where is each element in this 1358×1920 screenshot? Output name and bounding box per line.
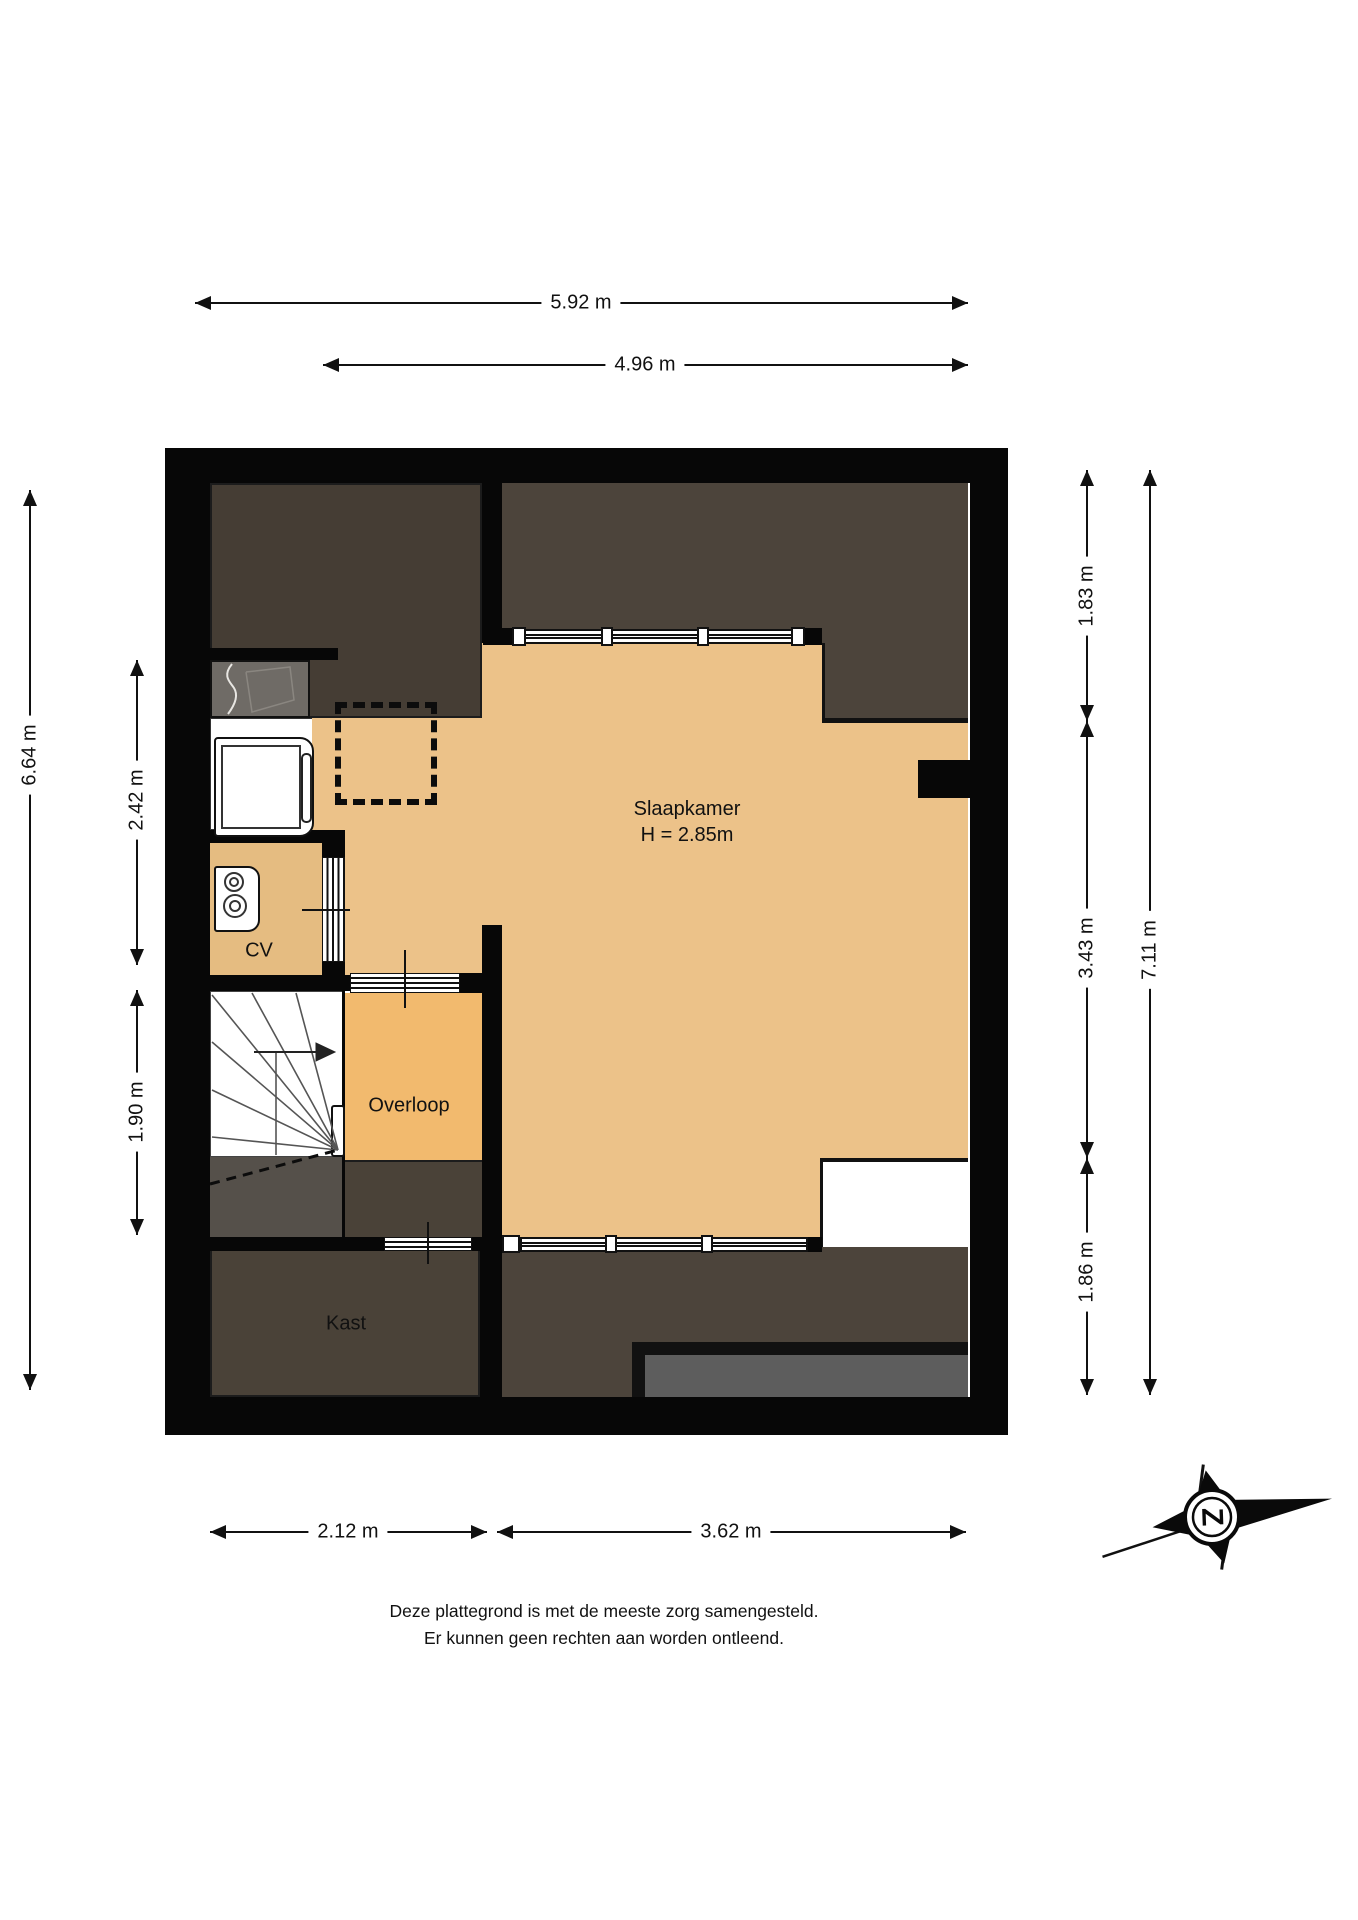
dim-right-sep1-lower (1080, 721, 1094, 737)
window-bottom-jamb-right (808, 1237, 822, 1252)
outer-wall-bottom (165, 1397, 1008, 1435)
disclaimer-line2: Er kunnen geen rechten aan worden ontlee… (390, 1625, 819, 1652)
dim-bottom-right-arrow-right (950, 1525, 966, 1539)
kast-label: Kast (326, 1313, 366, 1336)
floor-overloop (345, 993, 482, 1160)
door-overloop-tick (404, 950, 406, 1008)
window-top-end-left (512, 627, 526, 646)
cv-boiler (214, 866, 260, 932)
disclaimer-line1: Deze plattegrond is met de meeste zorg s… (390, 1598, 819, 1625)
edge-balcony-top (632, 1342, 968, 1355)
wall-cv-right-top (322, 830, 345, 858)
washing-machine-handle (301, 753, 312, 823)
washing-machine-drum (221, 745, 301, 829)
dim-top-inner-arrow-right (952, 358, 968, 372)
dim-left-outer-line (29, 490, 31, 1390)
window-top-line2 (514, 637, 803, 639)
dim-bottom-left-arrow-right (471, 1525, 487, 1539)
wall-window-jamb-right (805, 628, 822, 645)
edge-botright-top (822, 1158, 968, 1162)
window-bottom-divider2 (701, 1235, 713, 1253)
window-bottom (520, 1237, 808, 1252)
dim-bottom-right-arrow-left (497, 1525, 513, 1539)
dim-right-chain-arrow-top (1080, 470, 1094, 486)
window-bottom-divider1 (605, 1235, 617, 1253)
door-cv-tick (302, 909, 350, 911)
compass-star (1149, 1462, 1336, 1568)
dim-left-upper-arrow-top (130, 660, 144, 676)
window-bottom-end-left (502, 1235, 520, 1253)
window-top-line1 (514, 634, 803, 636)
floor-slaapkamer-main (502, 643, 822, 1237)
slaapkamer-label: Slaapkamer (634, 796, 741, 822)
cv-label: CV (245, 940, 273, 963)
dim-right-outer-arrow-top (1143, 470, 1157, 486)
window-top (512, 629, 805, 644)
dim-right-upper-label: 1.83 m (1076, 556, 1099, 635)
dim-bottom-left-arrow-left (210, 1525, 226, 1539)
dim-right-chain-arrow-bottom (1080, 1379, 1094, 1395)
dim-top-outer-arrow-left (195, 296, 211, 310)
dim-right-sep1-upper (1080, 705, 1094, 721)
cv-boiler-knob-top (224, 872, 244, 892)
dashed-roof-opening (335, 702, 437, 805)
dim-bottom-left-label: 2.12 m (308, 1521, 387, 1544)
dim-right-middle-label: 3.43 m (1076, 908, 1099, 987)
cv-boiler-knob-bottom-inner (229, 900, 241, 912)
outer-wall-right (970, 448, 1008, 1435)
dim-left-upper-label: 2.42 m (126, 760, 149, 839)
cv-boiler-knob-bottom (223, 894, 247, 918)
wall-landing-bottom (210, 1237, 384, 1251)
dim-top-inner-arrow-left (323, 358, 339, 372)
dim-top-outer-arrow-right (952, 296, 968, 310)
dim-left-lower-arrow-bottom (130, 1219, 144, 1235)
stairs-area (210, 991, 345, 1157)
overloop-label: Overloop (368, 1095, 449, 1118)
disclaimer: Deze plattegrond is met de meeste zorg s… (390, 1598, 819, 1652)
wall-topleft-room-right (482, 483, 502, 643)
dim-left-outer-label: 6.64 m (19, 715, 42, 794)
dim-right-sep2-lower (1080, 1158, 1094, 1174)
edge-topright-left (822, 643, 825, 723)
slaapkamer-height-label: H = 2.85m (634, 822, 741, 848)
wall-overloop-right (482, 925, 502, 1247)
compass: Z (1097, 1456, 1337, 1578)
slope-below-overloop (345, 1160, 482, 1237)
window-top-divider2 (697, 627, 709, 646)
slope-topright (502, 483, 968, 643)
wall-shower-top (210, 648, 338, 660)
shower-area (210, 660, 310, 718)
dim-top-outer-label: 5.92 m (541, 292, 620, 315)
stair-handrail-end (331, 1105, 345, 1157)
dim-top-inner-label: 4.96 m (605, 354, 684, 377)
window-top-end-right (791, 627, 805, 646)
floorplan-page: Z Slaapkamer H = 2.85m CV Overloop Kast … (0, 0, 1358, 1920)
window-bottom-line1 (522, 1242, 806, 1244)
compass-letter: Z (1195, 1507, 1229, 1526)
slope-topright-lower (822, 643, 968, 722)
slaapkamer-label-block: Slaapkamer H = 2.85m (634, 796, 741, 848)
dim-left-outer-arrow-top (23, 490, 37, 506)
dim-left-outer-arrow-bottom (23, 1374, 37, 1390)
balcony-gray-band (645, 1355, 968, 1397)
dim-left-upper-arrow-bottom (130, 949, 144, 965)
wall-kast-right (480, 1247, 502, 1397)
door-kast-tick (427, 1222, 429, 1264)
dim-bottom-right-label: 3.62 m (691, 1521, 770, 1544)
wall-right-stub (918, 760, 970, 798)
washing-machine (214, 737, 314, 837)
edge-balcony-left (632, 1342, 645, 1397)
dim-right-sep2-upper (1080, 1142, 1094, 1158)
stairs-landing (210, 1157, 345, 1240)
wall-stairs-top (210, 975, 350, 991)
window-top-divider1 (601, 627, 613, 646)
dim-left-lower-arrow-top (130, 990, 144, 1006)
edge-topright-bottom (822, 718, 968, 723)
dim-right-outer-label: 7.11 m (1139, 911, 1162, 989)
floor-strip (482, 643, 502, 925)
window-bottom-line2 (522, 1245, 806, 1247)
dim-right-lower-label: 1.86 m (1076, 1232, 1099, 1311)
dim-left-lower-label: 1.90 m (126, 1072, 149, 1151)
outer-wall-left (165, 448, 210, 1435)
dim-right-outer-arrow-bottom (1143, 1379, 1157, 1395)
outer-wall-top (165, 448, 1008, 483)
edge-botright-left (820, 1158, 823, 1247)
cv-boiler-knob-top-inner (229, 877, 239, 887)
wall-window-jamb-left (483, 628, 513, 645)
